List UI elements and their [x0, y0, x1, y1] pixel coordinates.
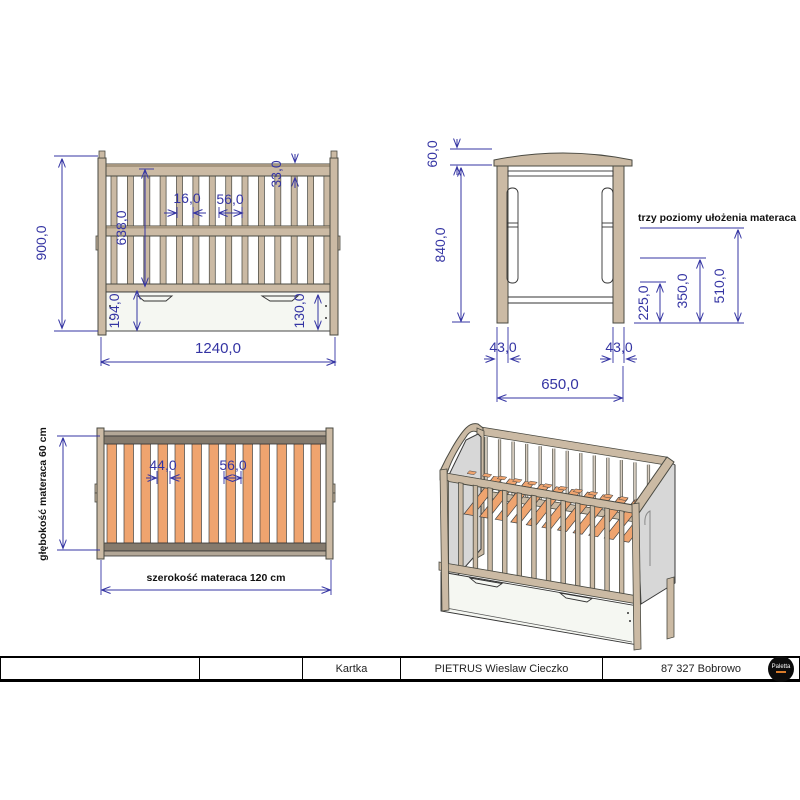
company-logo-text: Paletta — [772, 664, 791, 670]
dim-front-inner-height: 638,0 — [113, 210, 129, 245]
front-bottom-rail — [106, 284, 330, 292]
dim-mattress-level-mid: 350,0 — [674, 273, 690, 308]
technical-drawing: 900,0 638,0 194,0 16,0 56,0 33,0 130,0 — [0, 0, 800, 656]
title-block: Kartka PIETRUS Wieslaw Cieczko 87 327 Bo… — [0, 656, 800, 682]
dim-side-right-leg: 43,0 — [605, 339, 632, 355]
mattress-depth-label: głębokość materaca 60 cm — [37, 427, 49, 561]
iso-back-top-rail — [481, 427, 666, 465]
title-block-author: PIETRUS Wieslaw Cieczko — [401, 658, 603, 679]
front-right-post — [330, 158, 338, 335]
iso-view — [439, 424, 675, 650]
base-right-rail — [326, 428, 333, 559]
dim-front-total-width: 1240,0 — [195, 340, 241, 357]
front-left-post — [98, 158, 106, 335]
iso-front-right-leg — [632, 503, 641, 650]
dim-front-drawer-height: 130,0 — [291, 293, 307, 328]
dim-front-total-height: 900,0 — [33, 225, 49, 260]
dim-side-arch-height: 60,0 — [424, 140, 440, 167]
iso-back-right-leg — [667, 577, 674, 639]
dim-base-slat-spacing: 56,0 — [219, 457, 246, 473]
mattress-width-label: szerokość materaca 120 cm — [147, 572, 286, 584]
dim-side-left-leg: 43,0 — [489, 339, 516, 355]
dim-front-slat-width: 16,0 — [173, 190, 200, 206]
side-view-dimensions: 60,0 840,0 43,0 43,0 650,0 225,0 3 — [424, 139, 796, 402]
iso-front-left-leg — [440, 469, 449, 611]
side-upper-rail — [508, 171, 613, 176]
dim-mattress-level-high: 510,0 — [711, 268, 727, 303]
drawing-sheet: 900,0 638,0 194,0 16,0 56,0 33,0 130,0 — [0, 0, 800, 800]
title-block-location-cell: 87 327 Bobrowo Paletta — [603, 658, 799, 679]
dim-mattress-level-low: 225,0 — [635, 285, 651, 320]
side-back-leg — [613, 166, 624, 323]
front-right-post-cap — [331, 151, 337, 158]
base-bottom-edge — [104, 551, 326, 556]
title-block-cell-1 — [1, 658, 200, 679]
front-top-rail-edge — [106, 164, 330, 167]
dim-base-slat-width: 44,0 — [149, 457, 176, 473]
mattress-levels-note: trzy poziomy ułożenia materaca — [638, 212, 796, 224]
side-cutout-left — [507, 188, 518, 283]
dim-front-slat-spacing: 56,0 — [216, 191, 243, 207]
front-view-dimensions: 900,0 638,0 194,0 16,0 56,0 33,0 130,0 — [33, 154, 335, 366]
front-view: 900,0 638,0 194,0 16,0 56,0 33,0 130,0 — [33, 151, 340, 366]
title-block-sheet-label: Kartka — [303, 658, 401, 679]
side-cutout-right — [602, 188, 613, 283]
company-logo: Paletta — [768, 656, 794, 682]
title-block-cell-2 — [200, 658, 303, 679]
side-front-leg — [497, 166, 508, 323]
front-middle-rail-edge — [106, 226, 330, 229]
company-logo-accent — [776, 671, 786, 673]
base-top-edge — [104, 431, 326, 436]
base-left-rail — [97, 428, 104, 559]
base-view: 44,0 56,0 głębokość materaca 60 cm szero… — [37, 427, 335, 595]
dim-side-height: 840,0 — [432, 227, 448, 262]
side-view: 60,0 840,0 43,0 43,0 650,0 225,0 3 — [424, 139, 796, 402]
dim-front-rail-thickness: 33,0 — [268, 160, 284, 187]
base-top-rail — [104, 436, 326, 444]
side-arch-top — [494, 153, 632, 166]
base-bottom-rail — [104, 543, 326, 551]
title-block-location: 87 327 Bobrowo — [661, 663, 741, 675]
front-left-post-cap — [99, 151, 105, 158]
dim-side-depth: 650,0 — [541, 376, 579, 393]
dim-front-base-height: 194,0 — [106, 293, 122, 328]
